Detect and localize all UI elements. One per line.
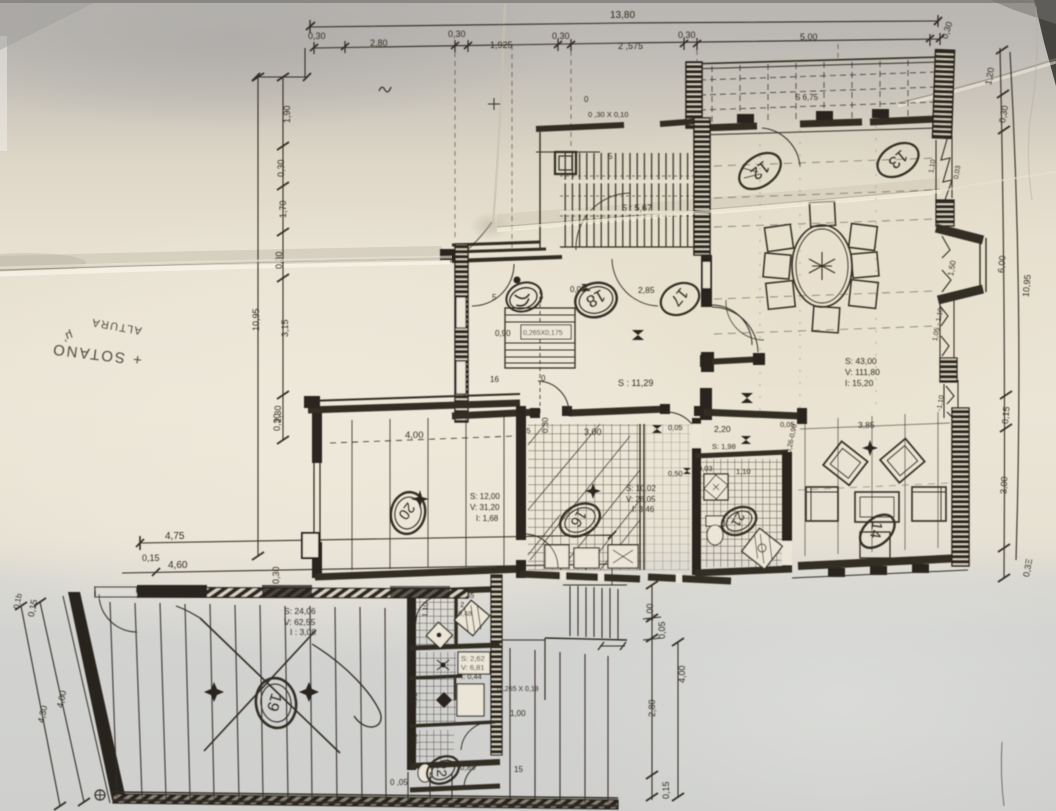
svg-text:1,90: 1,90: [282, 105, 292, 123]
svg-text:V: 6,81: V: 6,81: [461, 663, 485, 672]
svg-text:0,30: 0,30: [448, 29, 466, 39]
svg-text:0,05: 0,05: [516, 426, 531, 435]
svg-text:I: 1,68: I: 1,68: [476, 514, 499, 523]
svg-text:V: 62,55: V: 62,55: [284, 617, 316, 627]
svg-text:1,00: 1,00: [510, 709, 526, 718]
svg-text:2 ,575: 2 ,575: [618, 41, 643, 51]
svg-text:16: 16: [490, 375, 499, 384]
svg-text:2,80: 2,80: [647, 699, 657, 717]
svg-text:0,05: 0,05: [409, 733, 419, 748]
svg-text:0,15: 0,15: [1000, 406, 1011, 424]
svg-text:- 0,48: - 0,48: [454, 611, 472, 618]
svg-text:1,70: 1,70: [278, 200, 288, 218]
svg-text:14: 14: [866, 521, 885, 540]
svg-text:0,30: 0,30: [552, 31, 570, 41]
svg-text:S: 43,00: S: 43,00: [845, 356, 877, 366]
svg-text:4,75: 4,75: [165, 531, 185, 542]
svg-text:15: 15: [514, 765, 523, 774]
svg-text:2,20: 2,20: [714, 424, 731, 434]
svg-text:0,265X0,175: 0,265X0,175: [523, 330, 563, 337]
svg-text:2,30: 2,30: [273, 405, 283, 423]
svg-text:S: 10,02: S: 10,02: [626, 484, 656, 493]
svg-text:S: 2,62: S: 2,62: [461, 654, 485, 663]
svg-text:I: 3,46: I: 3,46: [632, 505, 655, 514]
svg-text:4,00: 4,00: [677, 665, 687, 683]
svg-text:3,00: 3,00: [998, 476, 1009, 494]
svg-text:0,30: 0,30: [276, 159, 286, 177]
svg-text:1,00: 1,00: [645, 603, 655, 621]
svg-text:I: 15,20: I: 15,20: [845, 378, 874, 388]
svg-text:13,80: 13,80: [610, 10, 635, 21]
svg-text:- 2: - 2: [456, 602, 464, 609]
svg-text:V: 26,05: V: 26,05: [626, 495, 656, 504]
svg-text:1,05: 1,05: [409, 692, 419, 707]
svg-text:S: 1,98: S: 1,98: [712, 442, 736, 451]
svg-text:0,15: 0,15: [661, 781, 671, 799]
svg-text:0 ,05: 0 ,05: [390, 778, 408, 787]
svg-text:5: 5: [608, 152, 613, 161]
svg-text:4,00: 4,00: [405, 430, 424, 441]
svg-text:0: 0: [584, 95, 589, 104]
svg-text:S : 11,29: S : 11,29: [618, 378, 653, 388]
svg-text:S 6,75: S 6,75: [795, 93, 819, 102]
svg-text:1,10: 1,10: [420, 602, 430, 617]
svg-text:0: 0: [541, 374, 546, 383]
svg-text:0,05: 0,05: [668, 423, 683, 432]
svg-text:S: 24,06: S: 24,06: [284, 606, 316, 616]
svg-text:4,60: 4,60: [168, 560, 188, 571]
svg-text:3,15: 3,15: [280, 319, 290, 337]
svg-text:0,05: 0,05: [780, 420, 795, 429]
svg-text:22: 22: [434, 762, 450, 778]
svg-text:0,85: 0,85: [460, 763, 476, 772]
svg-text:0,50: 0,50: [668, 469, 683, 478]
svg-text:0,90: 0,90: [495, 329, 511, 338]
svg-text:V: 31,20: V: 31,20: [470, 503, 500, 512]
svg-text:1,10: 1,10: [736, 467, 751, 476]
svg-text:10,95: 10,95: [251, 308, 261, 331]
svg-text:3,00: 3,00: [584, 427, 602, 437]
svg-text:0,03: 0,03: [698, 464, 713, 473]
svg-text:V: 111,80: V: 111,80: [845, 367, 880, 377]
svg-text:0 ,265 X 0,18: 0 ,265 X 0,18: [497, 686, 539, 693]
svg-text:3,85: 3,85: [858, 420, 875, 430]
svg-text:S: 12,00: S: 12,00: [470, 492, 500, 501]
svg-text:I: 0,44: I: 0,44: [461, 672, 482, 681]
svg-text:0,30: 0,30: [308, 31, 326, 41]
svg-text:2,80: 2,80: [370, 38, 388, 48]
svg-text:10,95: 10,95: [1021, 274, 1033, 297]
svg-text:1,925: 1,925: [490, 40, 513, 50]
svg-text:I : 3,08: I : 3,08: [290, 627, 316, 637]
svg-text:0,30: 0,30: [271, 566, 281, 584]
svg-text:0,05: 0,05: [657, 621, 667, 639]
svg-text:0 ,30 X 0,10: 0 ,30 X 0,10: [588, 110, 628, 119]
svg-text:2,85: 2,85: [638, 285, 655, 295]
svg-text:6,00: 6,00: [996, 255, 1007, 273]
svg-text:5 : 5,67: 5 : 5,67: [622, 203, 652, 213]
svg-text:5,00: 5,00: [800, 32, 818, 42]
svg-text:0,30: 0,30: [678, 30, 696, 40]
svg-text:0,15: 0,15: [142, 553, 160, 563]
